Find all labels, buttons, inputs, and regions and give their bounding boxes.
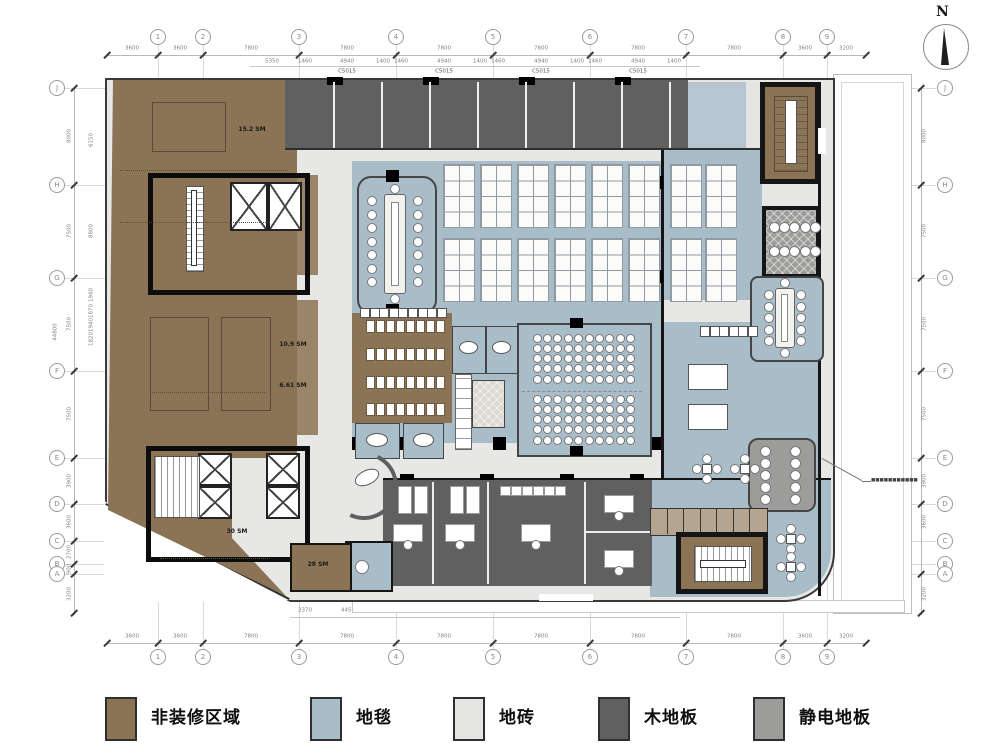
door-arc-icon	[541, 570, 569, 598]
seat-icon	[553, 375, 562, 384]
grid-bubble: 8	[775, 649, 791, 665]
dim-tick	[70, 274, 77, 281]
grid-bubble: 3	[291, 29, 307, 45]
window-tag: C4515	[529, 598, 547, 604]
office-divider	[432, 482, 434, 584]
counter-cell	[379, 308, 389, 318]
legend-label: 静电地板	[799, 706, 959, 730]
terrace-bottom	[352, 600, 905, 613]
north-needle-icon	[941, 28, 949, 65]
room-divider	[683, 508, 684, 534]
column-block	[650, 176, 663, 189]
column-block	[559, 270, 572, 283]
wall-block	[560, 474, 574, 481]
sofa-cell	[533, 486, 544, 496]
room-conference-main	[357, 176, 437, 314]
elevator-shaft	[198, 453, 232, 486]
dim-label: 1620	[648, 608, 662, 614]
dim-label: 3200	[67, 587, 73, 601]
booth-seat	[426, 320, 435, 333]
seat-icon	[616, 344, 625, 353]
seat-icon	[769, 246, 780, 257]
dim-label: 8000	[67, 129, 73, 143]
dim-label: 1460	[588, 59, 602, 65]
seat-icon	[585, 405, 594, 414]
dim-label: 7800	[534, 46, 548, 52]
rooms-small-band	[650, 508, 768, 536]
meeting-table-oval	[366, 433, 388, 447]
zone-carpet-bottom-right	[650, 480, 831, 597]
seat-icon	[626, 354, 635, 363]
seat-icon	[810, 222, 821, 233]
seat-icon	[543, 405, 552, 414]
dim-label: 1460	[491, 59, 505, 65]
conference-table	[384, 194, 406, 294]
dim-label: 1460	[394, 59, 408, 65]
dim-tick	[103, 639, 110, 646]
grid-line-v	[493, 44, 494, 652]
seat-icon	[789, 222, 800, 233]
seat-icon	[779, 222, 790, 233]
core-frame	[146, 446, 310, 562]
stair-flight	[694, 546, 752, 582]
dim-tick	[154, 51, 161, 58]
seat-icon	[626, 364, 635, 373]
grid-bubble: H	[937, 177, 953, 193]
stair-slot	[785, 100, 797, 164]
dim-tick	[70, 570, 77, 577]
booth-seat	[416, 376, 425, 389]
grid-line-h	[64, 574, 936, 575]
grid-bubble: 5	[485, 649, 501, 665]
dim-tick	[392, 51, 399, 58]
booth-seat	[396, 320, 405, 333]
seat-icon	[574, 415, 583, 424]
building-base	[105, 78, 835, 602]
seat-icon	[367, 210, 377, 220]
seat-icon	[595, 436, 604, 445]
seat-icon	[533, 415, 542, 424]
grid-bubble: 6	[582, 649, 598, 665]
workstation-cluster	[554, 164, 586, 228]
stair-flight	[186, 186, 204, 272]
dim-tick	[779, 51, 786, 58]
dim-tick	[779, 639, 786, 646]
seat-icon	[764, 325, 774, 335]
dim-label: 3600	[173, 46, 187, 52]
seat-icon	[626, 436, 635, 445]
seat-icon	[531, 540, 541, 550]
wall-right-inner	[818, 82, 821, 596]
dim-label: 7800	[631, 46, 645, 52]
office-divider	[584, 482, 586, 584]
dim-label: 1940	[89, 318, 95, 332]
dim-tick	[154, 639, 161, 646]
structural-grid: 123456789123456789JHGFEDCBAJHGFEDCBA	[0, 0, 1000, 743]
room-divider	[700, 508, 701, 534]
seat-icon	[543, 344, 552, 353]
seat-icon	[790, 494, 801, 505]
grid-bubble: G	[937, 270, 953, 286]
seat-icon	[810, 246, 821, 257]
grid-bubble: G	[49, 270, 65, 286]
seat-icon	[564, 344, 573, 353]
grid-bubble: 9	[819, 649, 835, 665]
room-stair-bottom-right	[676, 532, 768, 594]
counter-cell	[738, 326, 748, 337]
seat-icon	[740, 454, 750, 464]
seat-icon	[605, 425, 614, 434]
conference-table-slot	[781, 294, 788, 342]
dotted-line	[120, 170, 288, 172]
seat-icon	[367, 237, 377, 247]
room-meeting-a	[452, 326, 486, 374]
seat-icon	[455, 540, 465, 550]
seat-icon	[790, 470, 801, 481]
workstation-cluster	[628, 164, 660, 228]
dim-tick	[823, 639, 830, 646]
seat-icon	[750, 464, 760, 474]
dim-tick	[917, 570, 924, 577]
seat-icon	[605, 436, 614, 445]
wall-block	[630, 474, 644, 481]
elevator-shaft	[198, 486, 232, 519]
legend-swatch	[105, 697, 137, 741]
counter-cell	[700, 326, 710, 337]
seat-icon	[626, 425, 635, 434]
locker-column	[455, 374, 472, 450]
window-tag: C4515	[333, 598, 351, 604]
counter-cell	[398, 308, 408, 318]
reception-counter-oval	[352, 465, 382, 490]
seat-icon	[543, 425, 552, 434]
workstation-cluster	[517, 238, 549, 302]
dim-tick	[70, 84, 77, 91]
counter-cell	[408, 308, 418, 318]
office-divider	[669, 82, 671, 148]
dotted-line	[120, 222, 270, 224]
seat-icon	[564, 405, 573, 414]
grid-bubble: A	[937, 566, 953, 582]
room-carpet-small	[345, 541, 393, 592]
seat-icon	[574, 375, 583, 384]
booth-seat	[376, 320, 385, 333]
desk	[521, 524, 551, 542]
zone-booth-lounge	[352, 313, 452, 423]
dim-tick	[682, 639, 689, 646]
wall-block	[327, 77, 343, 85]
booth-seat	[396, 403, 405, 416]
dim-label: 7800	[340, 46, 354, 52]
booth-seat	[426, 376, 435, 389]
desk	[398, 486, 412, 514]
room-meeting-c	[355, 423, 400, 459]
office-divider	[333, 82, 335, 148]
legend-swatch	[453, 697, 485, 741]
grid-line-v	[158, 44, 159, 652]
dim-label: 7800	[340, 634, 354, 640]
booth-seat	[436, 376, 445, 389]
dim-label: 3200	[839, 46, 853, 52]
seat-icon	[616, 436, 625, 445]
seat-icon	[367, 277, 377, 287]
zone-wood-bottom-offices	[383, 480, 652, 586]
column-block	[396, 437, 409, 450]
door-arc-icon	[565, 570, 593, 598]
seat-icon	[800, 246, 811, 257]
seat-icon	[553, 334, 562, 343]
seat-icon	[776, 562, 786, 572]
seat-icon	[776, 534, 786, 544]
dim-tick	[103, 51, 110, 58]
seat-icon	[796, 534, 806, 544]
dim-label: 3600	[67, 515, 73, 529]
reception-desk	[320, 442, 407, 529]
column-block	[386, 304, 399, 316]
room-stair-top-right	[760, 82, 820, 184]
legend-label: 木地板	[644, 706, 804, 730]
dim-tick	[586, 51, 593, 58]
legend-label: 地毯	[356, 706, 516, 730]
grid-bubble: 9	[819, 29, 835, 45]
seat-icon	[789, 246, 800, 257]
stair-flight	[154, 456, 200, 518]
legend-swatch	[310, 697, 342, 741]
dim-label: 1080	[483, 608, 497, 614]
counter-cell	[389, 308, 399, 318]
dim-label: 3600	[125, 634, 139, 640]
room-28sm	[290, 543, 352, 592]
dim-line	[74, 88, 75, 615]
seat-icon	[616, 395, 625, 404]
column-block	[493, 437, 506, 450]
dim-label: 7500	[67, 407, 73, 421]
legend-swatch	[598, 697, 630, 741]
seat-icon	[626, 415, 635, 424]
seat-icon	[543, 334, 552, 343]
dim-tick	[199, 639, 206, 646]
seat-icon	[760, 458, 771, 469]
dim-tick	[70, 454, 77, 461]
wall-main-vertical	[661, 150, 664, 480]
seat-icon	[553, 415, 562, 424]
seat-icon	[553, 354, 562, 363]
zone-wood-top-offices	[285, 80, 688, 150]
dim-label: 4450	[433, 608, 447, 614]
seat-icon	[574, 354, 583, 363]
room-training	[517, 323, 652, 457]
dim-label: 8000	[922, 129, 928, 143]
grid-bubble: 8	[775, 29, 791, 45]
column-block	[386, 170, 399, 182]
column-block	[648, 437, 661, 450]
legend-label: 非装修区域	[151, 706, 311, 730]
dim-label: 4450	[341, 608, 355, 614]
dim-label: 7800	[727, 634, 741, 640]
window-tag: C5015	[338, 69, 356, 75]
seat-icon	[574, 344, 583, 353]
grid-line-h	[64, 564, 936, 565]
seat-icon	[626, 334, 635, 343]
grid-line-v	[783, 44, 784, 652]
seat-icon	[626, 405, 635, 414]
workstation-cluster	[480, 164, 512, 228]
dim-label: 3600	[798, 634, 812, 640]
stair-flight	[774, 96, 808, 172]
seat-icon	[595, 364, 604, 373]
grid-bubble: D	[937, 496, 953, 512]
booth-seat	[366, 403, 375, 416]
seat-icon	[760, 482, 771, 493]
seat-icon	[533, 334, 542, 343]
cafe-table	[740, 464, 750, 474]
seat-icon	[367, 196, 377, 206]
dim-label: 3200	[922, 587, 928, 601]
booth-seat	[406, 320, 415, 333]
column-block	[559, 176, 572, 189]
dim-line	[107, 55, 866, 56]
dim-label: 2700	[67, 545, 73, 559]
seat-icon	[355, 560, 369, 574]
workstation-cluster	[591, 238, 623, 302]
office-divider	[487, 482, 489, 584]
seat-icon	[564, 436, 573, 445]
seat-icon	[730, 464, 740, 474]
booth-seat	[396, 348, 405, 361]
workstation-cluster	[443, 238, 475, 302]
room-hatch	[472, 380, 505, 428]
seat-icon	[553, 425, 562, 434]
seat-icon	[796, 302, 806, 312]
room-divider	[733, 508, 734, 534]
dim-tick	[586, 639, 593, 646]
grid-line-v	[299, 44, 300, 652]
seat-icon	[605, 395, 614, 404]
leader-line	[862, 481, 871, 482]
dim-label: 1820	[89, 332, 95, 346]
door-gap	[818, 128, 826, 154]
room-static-top	[762, 206, 820, 278]
seat-icon	[564, 395, 573, 404]
wall-block	[615, 77, 631, 85]
seat-icon	[585, 415, 594, 424]
window-tag: C5015	[435, 69, 453, 75]
dim-line	[290, 617, 680, 618]
grid-bubble: 4	[388, 29, 404, 45]
booth-seat	[386, 376, 395, 389]
seat-icon	[585, 334, 594, 343]
dim-tick	[489, 639, 496, 646]
window-tag: C5015	[629, 69, 647, 75]
grid-line-v	[203, 44, 204, 652]
dim-label: 4450	[523, 608, 537, 614]
dim-label: 7500	[67, 224, 73, 238]
booth-seat	[416, 320, 425, 333]
cafe-table	[702, 464, 712, 474]
dim-tick	[917, 274, 924, 281]
seat-icon	[543, 436, 552, 445]
seat-icon	[616, 375, 625, 384]
seat-icon	[543, 354, 552, 363]
workstation-cluster	[670, 238, 702, 302]
seat-icon	[702, 454, 712, 464]
grid-line-h	[64, 541, 936, 542]
seat-icon	[533, 425, 542, 434]
grid-bubble: 7	[678, 649, 694, 665]
seat-icon	[585, 425, 594, 434]
counter-cell	[729, 326, 739, 337]
elevator-shaft	[266, 486, 300, 519]
cafe-table	[786, 534, 796, 544]
legend-label: 地砖	[499, 706, 659, 730]
seat-icon	[605, 405, 614, 414]
grid-bubble: 2	[195, 29, 211, 45]
seat-icon	[764, 336, 774, 346]
dim-label: 7800	[244, 634, 258, 640]
seat-icon	[413, 196, 423, 206]
grid-bubble: 1	[150, 29, 166, 45]
seat-icon	[543, 375, 552, 384]
seat-icon	[403, 540, 413, 550]
grid-bubble: J	[937, 80, 953, 96]
dim-tick	[917, 84, 924, 91]
stair-rail	[191, 190, 197, 266]
seat-icon	[553, 395, 562, 404]
room-area-label: 15.2 SM	[238, 127, 265, 133]
corridor-right	[663, 300, 750, 322]
seat-icon	[553, 405, 562, 414]
dim-label: 7500	[67, 317, 73, 331]
grid-bubble: 5	[485, 29, 501, 45]
seat-icon	[616, 425, 625, 434]
seat-icon	[740, 474, 750, 484]
room-area-label: 10.9 SM	[279, 342, 306, 348]
dim-tick	[392, 639, 399, 646]
workstation-cluster	[670, 164, 702, 228]
seat-icon	[605, 354, 614, 363]
dim-label: 5350	[265, 59, 279, 65]
seat-icon	[413, 250, 423, 260]
wall-under-offices	[285, 148, 762, 150]
dim-line	[921, 88, 922, 615]
seat-icon	[564, 415, 573, 424]
seat-icon	[786, 572, 796, 582]
booth-seat	[426, 403, 435, 416]
roof-outline	[150, 317, 209, 411]
room-divider	[716, 508, 717, 534]
grid-bubble: 4	[388, 649, 404, 665]
column-block	[352, 437, 365, 450]
grid-bubble: F	[49, 363, 65, 379]
seat-icon	[574, 395, 583, 404]
booth-seat	[366, 376, 375, 389]
seat-icon	[786, 544, 796, 554]
seat-icon	[764, 302, 774, 312]
seat-icon	[796, 290, 806, 300]
booth-seat	[386, 403, 395, 416]
booth-seat	[426, 348, 435, 361]
zone-carpet-right-mid	[663, 322, 820, 480]
column-block	[570, 318, 583, 328]
booth-seat	[376, 403, 385, 416]
seat-icon	[786, 524, 796, 534]
seat-icon	[790, 446, 801, 457]
seat-icon	[533, 395, 542, 404]
grid-bubble: 1	[150, 649, 166, 665]
dim-label: 7500	[922, 407, 928, 421]
seat-icon	[574, 405, 583, 414]
booth-seat	[436, 320, 445, 333]
